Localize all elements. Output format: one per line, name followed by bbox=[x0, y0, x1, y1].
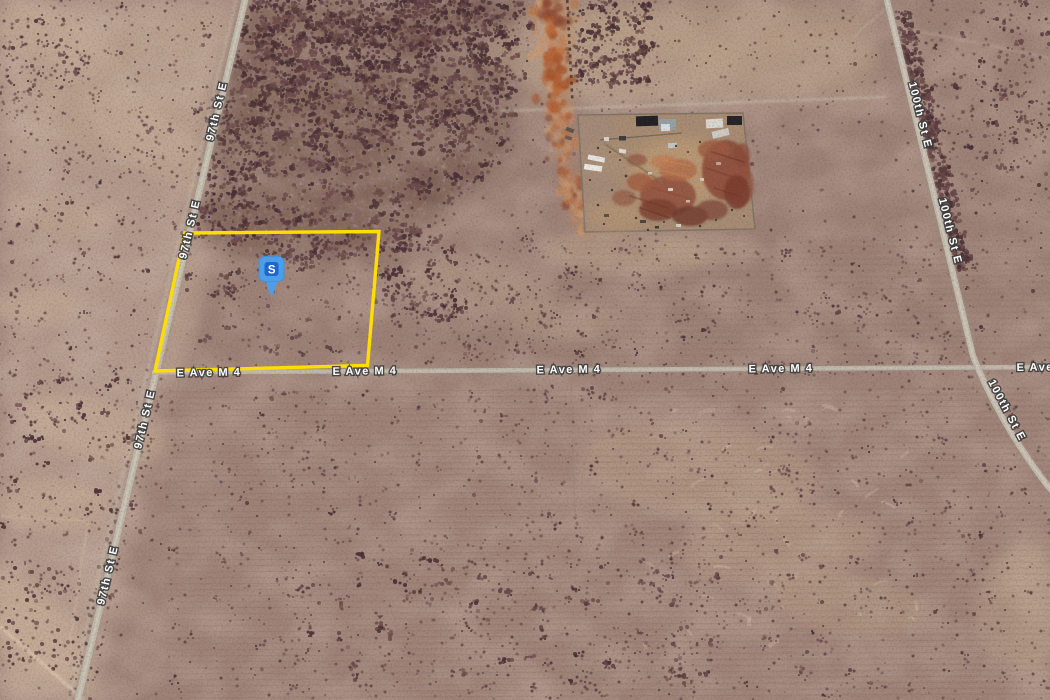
svg-text:E Ave M 4: E Ave M 4 bbox=[177, 367, 242, 380]
svg-text:E Ave M 4: E Ave M 4 bbox=[537, 364, 602, 377]
svg-text:E Ave M 4: E Ave M 4 bbox=[1017, 361, 1050, 374]
svg-text:S: S bbox=[268, 265, 276, 277]
svg-text:E Ave M 4: E Ave M 4 bbox=[749, 363, 814, 376]
svg-text:E Ave M 4: E Ave M 4 bbox=[333, 365, 398, 378]
